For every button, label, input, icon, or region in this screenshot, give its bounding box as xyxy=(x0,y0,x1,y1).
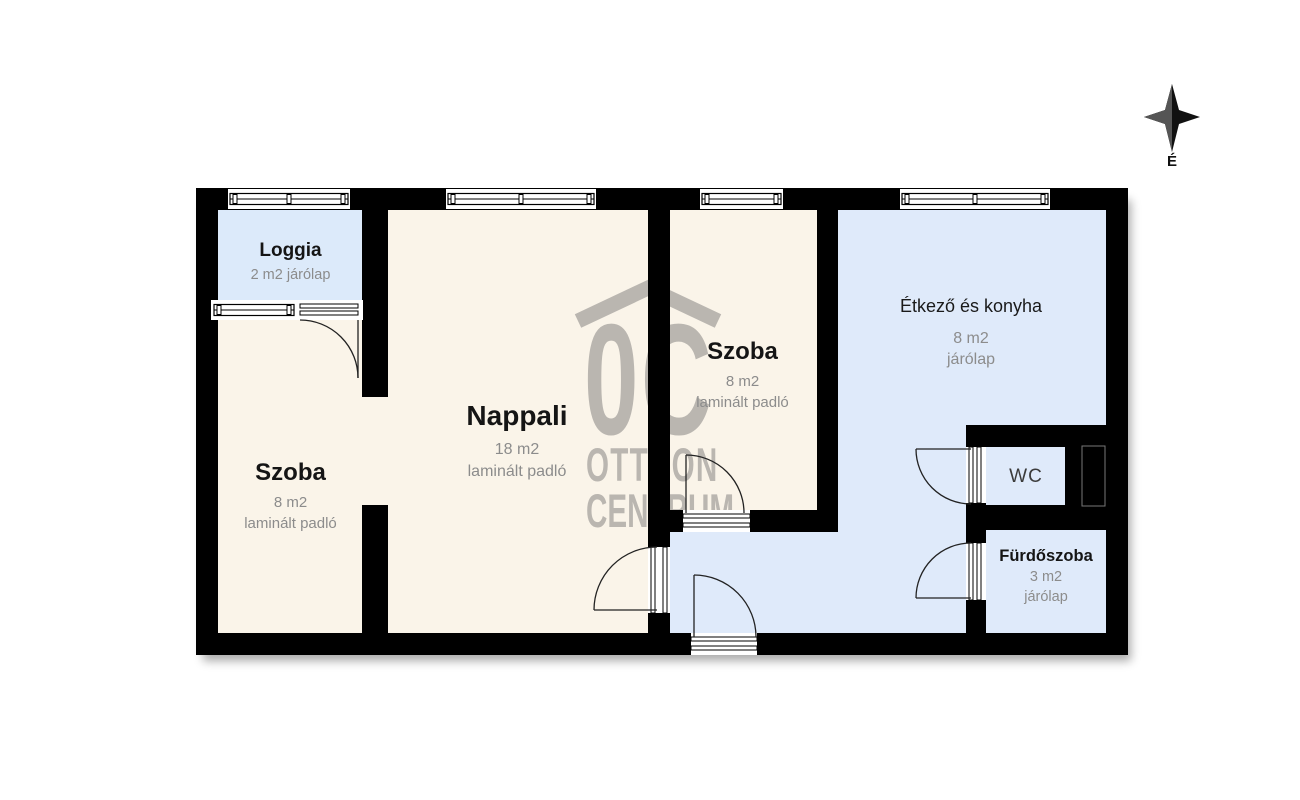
szoba-left-floor xyxy=(218,318,363,638)
hall-floor xyxy=(668,528,968,636)
compass-north-label: É xyxy=(1158,153,1186,170)
duct-shaft xyxy=(1082,446,1105,506)
floor-plan-drawing: 0C OTTHON CENTRUM xyxy=(0,0,1300,800)
door-frame-bathroom xyxy=(966,543,986,600)
window-nappali-icon xyxy=(446,189,596,209)
wall-nappali-right-lower xyxy=(648,613,670,638)
compass-north-icon xyxy=(1144,84,1200,152)
wall-szoba-nappali-lower xyxy=(362,505,388,638)
wall-nappali-right-upper xyxy=(648,188,670,547)
passage-floor xyxy=(360,397,390,505)
window-szoba-middle-icon xyxy=(700,189,783,209)
wc-floor xyxy=(985,445,1067,507)
window-etkezo-icon xyxy=(900,189,1050,209)
loggia-floor xyxy=(218,208,363,303)
wall-right xyxy=(1106,188,1128,655)
bathroom-floor xyxy=(985,528,1107,635)
wall-left xyxy=(196,188,218,655)
window-loggia-balcony-icon xyxy=(211,300,363,320)
wall-wc-bottom xyxy=(966,505,1106,530)
floor-plan-page: 0C OTTHON CENTRUM xyxy=(0,0,1300,800)
door-frame-wc xyxy=(966,447,986,503)
door-frame-entrance xyxy=(691,633,757,655)
wall-wc-top xyxy=(966,425,1106,447)
door-frame-nappali xyxy=(648,547,670,613)
etkezo-nook-floor xyxy=(836,208,968,532)
window-loggia-icon xyxy=(228,189,350,209)
wall-szoba-etkezo xyxy=(817,188,838,532)
wall-szoba-nappali-upper xyxy=(362,188,388,397)
door-frame-szoba-middle xyxy=(683,510,750,532)
